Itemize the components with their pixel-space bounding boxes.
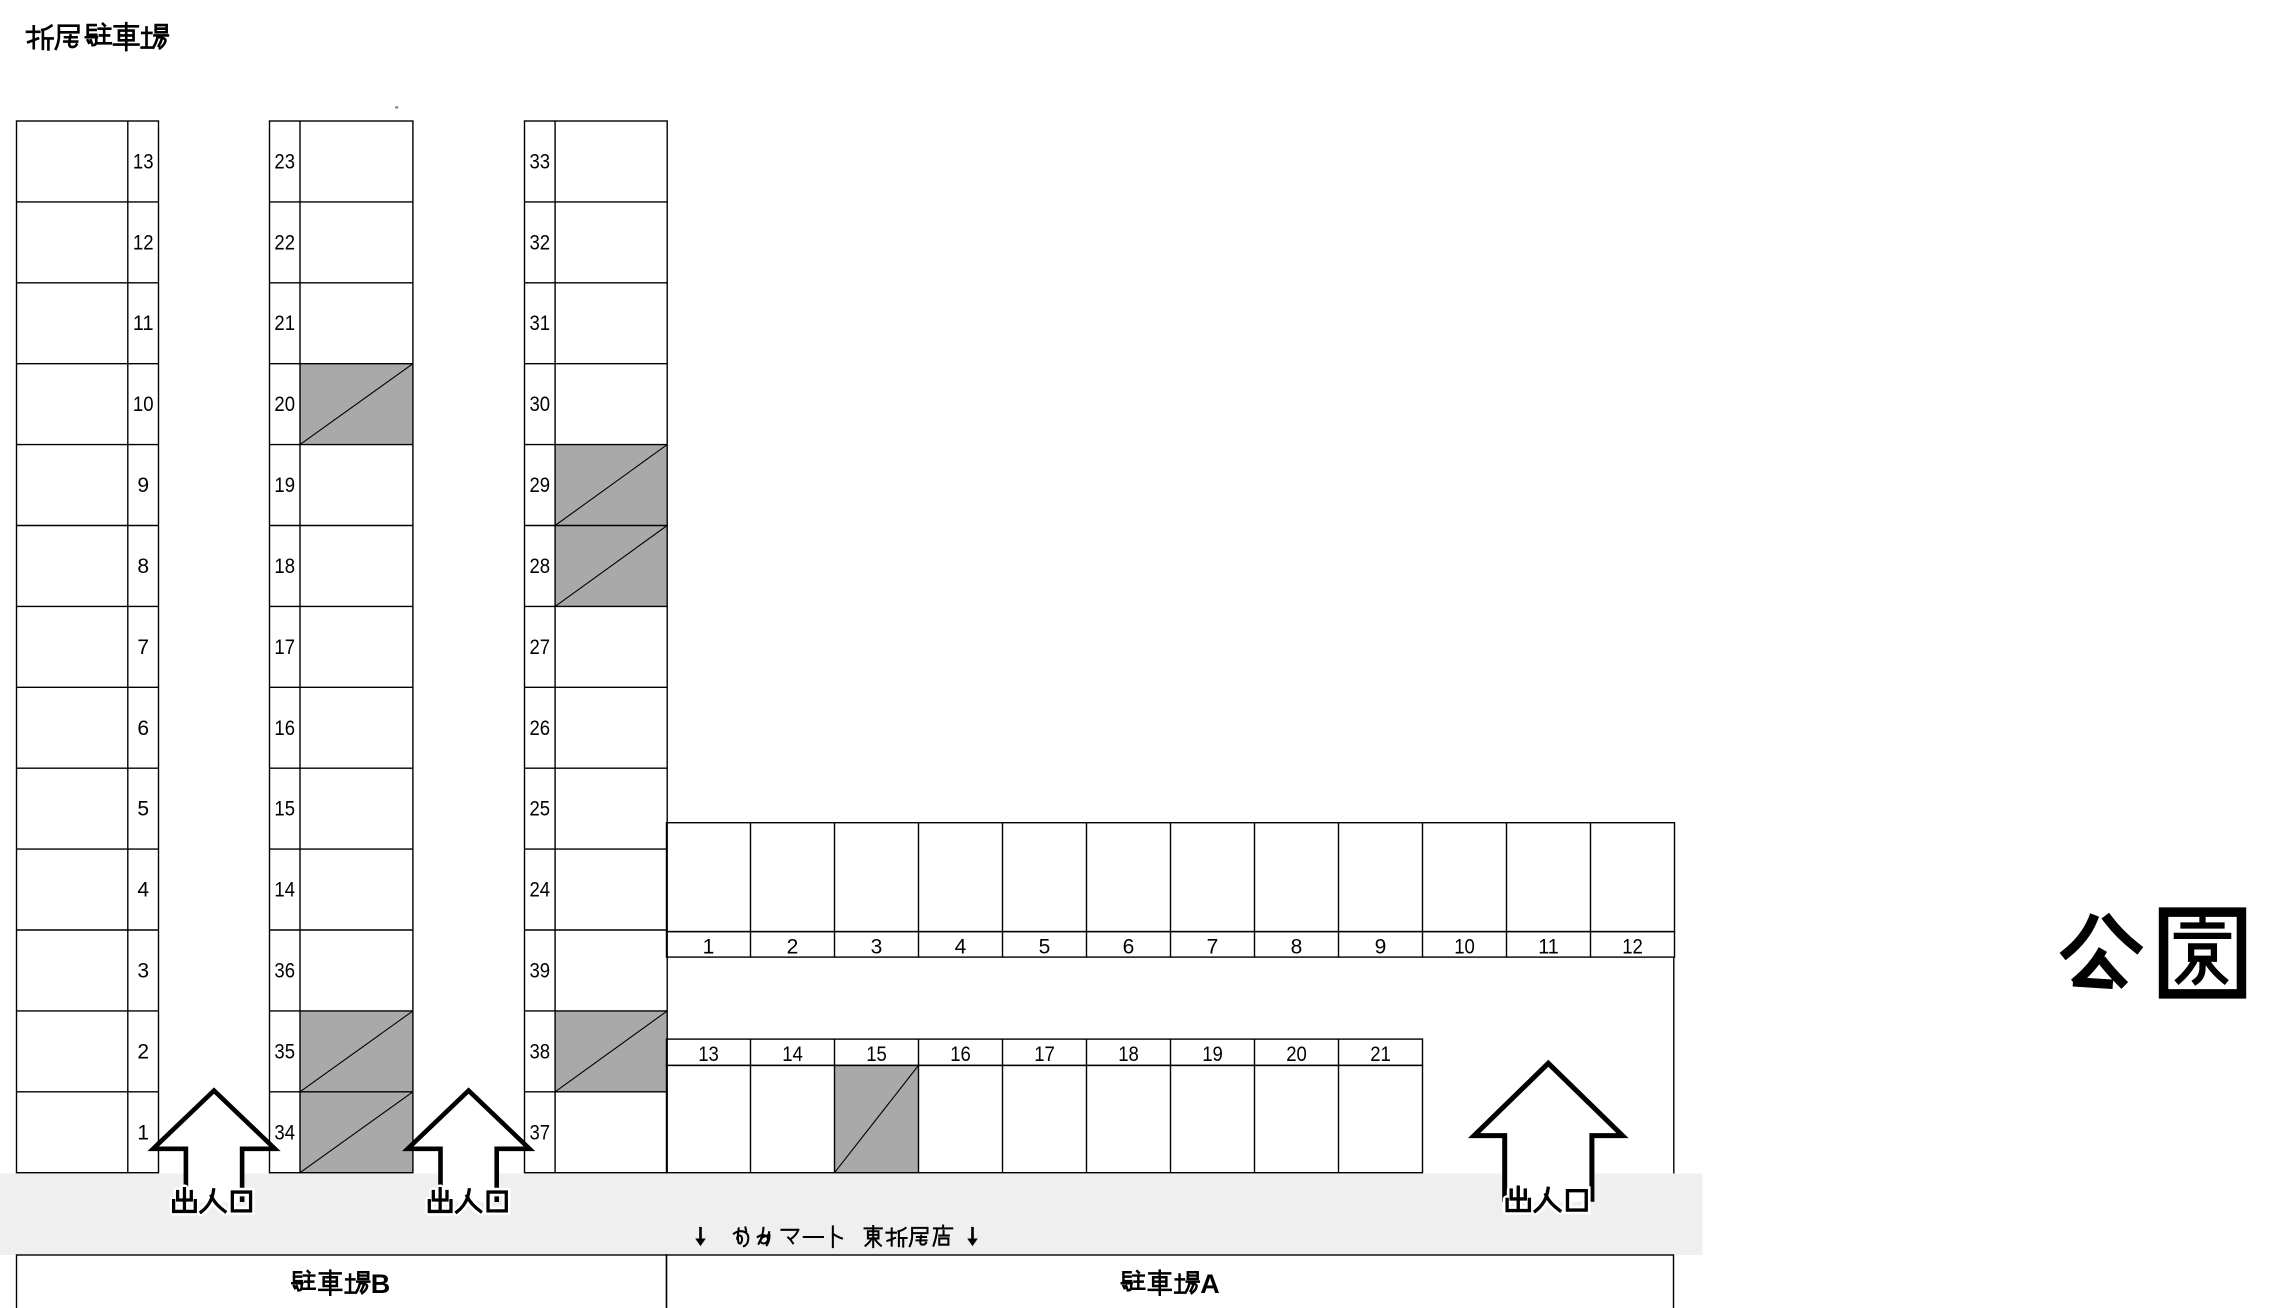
svg-text:31: 31 <box>530 312 551 335</box>
svg-text:26: 26 <box>530 717 551 740</box>
svg-text:12: 12 <box>133 231 154 254</box>
svg-text:6: 6 <box>137 717 149 740</box>
svg-text:1: 1 <box>137 1121 149 1144</box>
svg-text:33: 33 <box>530 150 551 173</box>
svg-text:13: 13 <box>698 1043 719 1066</box>
svg-text:35: 35 <box>274 1040 295 1063</box>
svg-text:2: 2 <box>137 1040 149 1063</box>
svg-text:38: 38 <box>530 1040 551 1063</box>
svg-text:10: 10 <box>1454 935 1475 958</box>
svg-text:12: 12 <box>1622 935 1643 958</box>
svg-text:15: 15 <box>866 1043 887 1066</box>
svg-text:27: 27 <box>530 636 551 659</box>
svg-text:34: 34 <box>274 1121 295 1144</box>
svg-text:29: 29 <box>530 474 551 497</box>
svg-text:11: 11 <box>133 312 154 335</box>
svg-text:5: 5 <box>137 798 149 821</box>
svg-text:23: 23 <box>274 150 295 173</box>
svg-text:36: 36 <box>274 960 295 983</box>
svg-text:1: 1 <box>703 935 715 958</box>
svg-text:2: 2 <box>787 935 799 958</box>
svg-text:32: 32 <box>530 231 551 254</box>
svg-text:21: 21 <box>1370 1043 1391 1066</box>
svg-text:19: 19 <box>1202 1043 1223 1066</box>
svg-text:5: 5 <box>1039 935 1051 958</box>
svg-text:16: 16 <box>950 1043 971 1066</box>
svg-text:17: 17 <box>274 636 295 659</box>
svg-text:9: 9 <box>1375 935 1387 958</box>
svg-text:18: 18 <box>274 555 295 578</box>
svg-text:13: 13 <box>133 150 154 173</box>
svg-text:22: 22 <box>274 231 295 254</box>
svg-text:4: 4 <box>137 879 149 902</box>
svg-text:4: 4 <box>955 935 967 958</box>
svg-text:A: A <box>1200 1269 1220 1299</box>
svg-text:18: 18 <box>1118 1043 1139 1066</box>
svg-text:16: 16 <box>274 717 295 740</box>
svg-text:21: 21 <box>274 312 295 335</box>
svg-text:3: 3 <box>871 935 883 958</box>
svg-text:28: 28 <box>530 555 551 578</box>
svg-text:24: 24 <box>530 879 551 902</box>
svg-text:6: 6 <box>1123 935 1135 958</box>
svg-text:8: 8 <box>137 555 149 578</box>
svg-text:17: 17 <box>1034 1043 1055 1066</box>
svg-text:39: 39 <box>530 960 551 983</box>
svg-text:20: 20 <box>1286 1043 1307 1066</box>
svg-text:14: 14 <box>782 1043 803 1066</box>
svg-text:37: 37 <box>530 1121 551 1144</box>
svg-text:25: 25 <box>530 798 551 821</box>
svg-text:B: B <box>371 1269 391 1299</box>
svg-text:20: 20 <box>274 393 295 416</box>
svg-text:30: 30 <box>530 393 551 416</box>
svg-text:7: 7 <box>1207 935 1219 958</box>
svg-text:7: 7 <box>137 636 149 659</box>
svg-text:3: 3 <box>137 960 149 983</box>
svg-text:8: 8 <box>1291 935 1303 958</box>
svg-text:10: 10 <box>133 393 154 416</box>
svg-text:14: 14 <box>274 879 295 902</box>
svg-text:15: 15 <box>274 798 295 821</box>
svg-text:19: 19 <box>274 474 295 497</box>
svg-text:9: 9 <box>137 474 149 497</box>
svg-text:11: 11 <box>1538 935 1559 958</box>
